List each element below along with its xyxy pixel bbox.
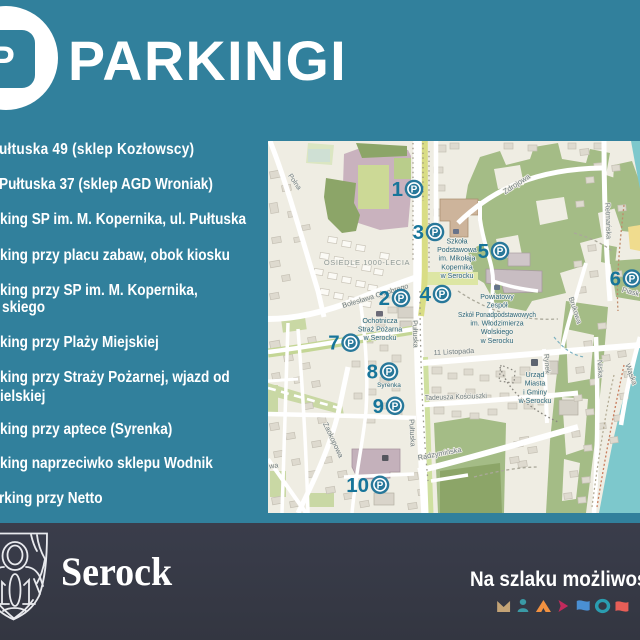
svg-text:P: P bbox=[392, 401, 399, 412]
svg-text:wa: wa bbox=[268, 460, 279, 470]
svg-text:OSIEDLE 1000-LECIA: OSIEDLE 1000-LECIA bbox=[324, 258, 410, 267]
svg-text:7: 7 bbox=[328, 332, 339, 355]
svg-text:8: 8 bbox=[367, 361, 378, 384]
svg-text:P: P bbox=[386, 367, 393, 378]
svg-text:P: P bbox=[377, 480, 384, 491]
svg-text:Straż Pożarna: Straż Pożarna bbox=[358, 327, 402, 334]
svg-text:P: P bbox=[629, 274, 636, 285]
svg-text:P: P bbox=[497, 247, 504, 258]
svg-text:Retmańska: Retmańska bbox=[603, 203, 613, 240]
svg-text:Kopernika: Kopernika bbox=[441, 264, 473, 271]
svg-text:Szkoła: Szkoła bbox=[446, 239, 467, 246]
svg-text:Pułtuska: Pułtuska bbox=[411, 320, 421, 348]
svg-text:1: 1 bbox=[392, 178, 403, 201]
svg-text:P: P bbox=[347, 338, 354, 349]
svg-text:Urząd: Urząd bbox=[526, 372, 545, 379]
svg-text:Syrenka: Syrenka bbox=[377, 382, 401, 389]
svg-text:9: 9 bbox=[373, 395, 384, 418]
svg-text:Wolskiego: Wolskiego bbox=[481, 329, 513, 336]
svg-text:P: P bbox=[432, 228, 439, 239]
svg-text:Szkół Ponadpodstawowych: Szkół Ponadpodstawowych bbox=[458, 312, 536, 319]
svg-text:i Gminy: i Gminy bbox=[523, 389, 547, 396]
svg-text:im. Mikołaja: im. Mikołaja bbox=[439, 256, 476, 263]
svg-text:6: 6 bbox=[610, 268, 621, 291]
svg-text:im. Włodzimierza: im. Włodzimierza bbox=[470, 321, 523, 328]
svg-text:5: 5 bbox=[478, 240, 489, 263]
svg-text:w Serocku: w Serocku bbox=[363, 335, 397, 342]
svg-text:2: 2 bbox=[379, 287, 390, 310]
svg-text:Niska: Niska bbox=[596, 360, 606, 378]
svg-text:w Serocku: w Serocku bbox=[480, 338, 514, 345]
svg-text:3: 3 bbox=[413, 221, 424, 244]
svg-text:Podstawowa: Podstawowa bbox=[437, 247, 477, 254]
svg-text:Zespół: Zespół bbox=[486, 303, 507, 310]
svg-text:w Serocku: w Serocku bbox=[518, 398, 552, 405]
svg-text:Ochotnicza: Ochotnicza bbox=[362, 318, 397, 325]
svg-text:Powiatowy: Powiatowy bbox=[480, 294, 514, 301]
svg-text:Pułtuska: Pułtuska bbox=[407, 419, 417, 447]
svg-text:P: P bbox=[398, 294, 405, 305]
svg-text:Miasta: Miasta bbox=[525, 381, 546, 388]
svg-text:10: 10 bbox=[346, 474, 369, 497]
svg-text:4: 4 bbox=[420, 283, 432, 306]
svg-text:P: P bbox=[439, 290, 446, 301]
svg-text:w Serocku: w Serocku bbox=[440, 273, 474, 280]
svg-text:P: P bbox=[411, 185, 418, 196]
